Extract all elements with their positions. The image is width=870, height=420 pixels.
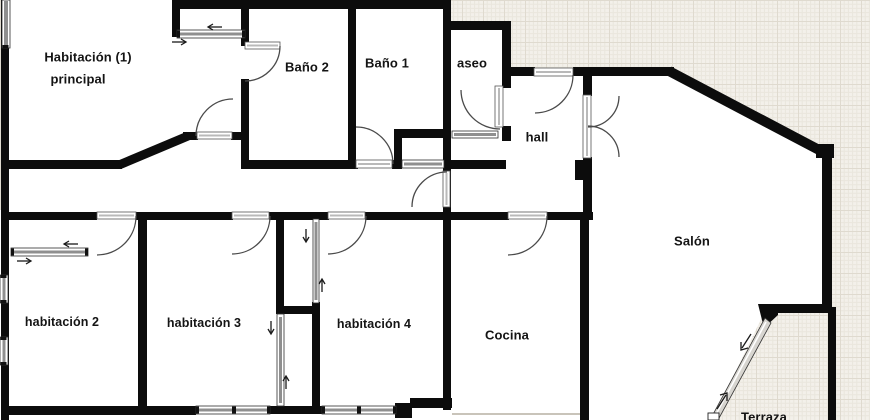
room-label-habitacion4: habitación 4 (337, 317, 411, 331)
glazing-vestibule-2 (452, 131, 498, 138)
wall-right-salon (822, 149, 832, 312)
closet-slider-hab2 (11, 248, 88, 256)
room-label-terraza: Terraza (741, 410, 787, 420)
floor-plan: Habitación (1) principal Baño 2 Baño 1 a… (0, 0, 870, 420)
wall-corridor-top-left (1, 160, 122, 169)
wall-bottom (1, 406, 196, 415)
pillar (575, 160, 592, 180)
closet-slider-hab3 (277, 314, 284, 406)
wall-top (173, 0, 451, 9)
closet-slider-principal (177, 30, 245, 38)
wall-bano-divider (348, 0, 356, 166)
window-principal-left (2, 0, 10, 48)
room-label-principal-line1: Habitación (1) (44, 50, 131, 65)
window-hab2-left-2 (0, 337, 8, 365)
window-hab4-bottom (322, 406, 396, 414)
room-label-principal-line2: principal (50, 72, 105, 87)
wall-hab2-hab3 (138, 212, 147, 410)
room-label-salon: Salón (674, 234, 710, 249)
wall-right-terraza (828, 307, 836, 420)
room-label-habitacion2: habitación 2 (25, 315, 99, 329)
wall-hab4-cocina (443, 212, 451, 410)
glazing-vestibule-1 (402, 160, 444, 168)
room-label-habitacion3: habitación 3 (167, 316, 241, 330)
window-hab3-bottom (196, 406, 270, 414)
room-label-hall: hall (526, 130, 549, 145)
wall-cocina-salon (580, 212, 589, 420)
window-hab2-left-1 (0, 275, 8, 303)
closet-slider-hab4 (313, 219, 319, 303)
room-label-bano2: Baño 2 (285, 60, 329, 75)
room-label-aseo: aseo (457, 56, 487, 71)
room-label-bano1: Baño 1 (365, 56, 409, 71)
room-label-cocina: Cocina (485, 328, 529, 343)
